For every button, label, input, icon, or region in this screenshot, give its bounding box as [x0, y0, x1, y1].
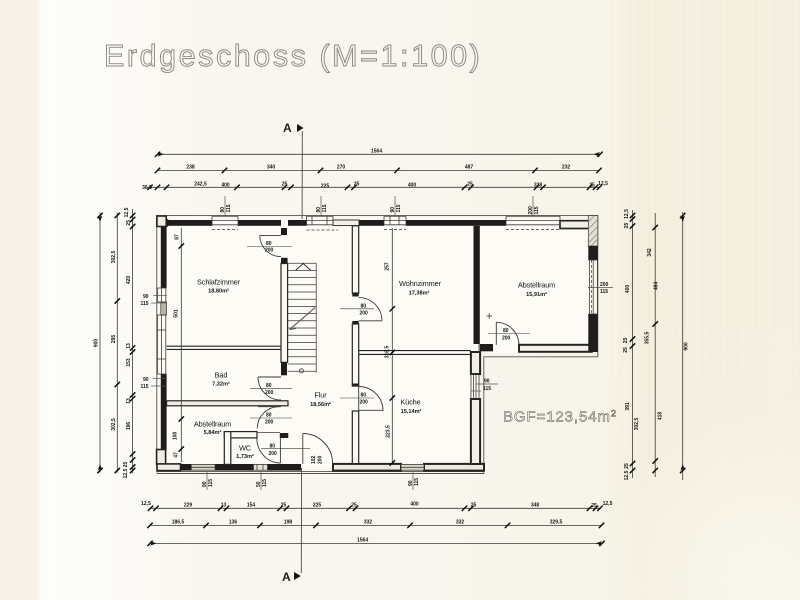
svg-text:332: 332 [456, 519, 465, 525]
svg-text:238: 238 [186, 164, 195, 170]
svg-text:25: 25 [591, 503, 597, 509]
svg-text:25: 25 [471, 502, 477, 508]
svg-text:200: 200 [265, 420, 274, 426]
svg-text:115: 115 [208, 479, 214, 487]
svg-text:47: 47 [174, 452, 180, 458]
svg-text:BGF=123,54m2: BGF=123,54m2 [503, 409, 617, 426]
svg-text:13: 13 [221, 502, 227, 508]
svg-text:196: 196 [126, 422, 132, 431]
svg-text:18,80m²: 18,80m² [208, 288, 229, 295]
svg-text:186,5: 186,5 [172, 519, 185, 525]
svg-text:200: 200 [502, 336, 511, 342]
svg-text:A: A [282, 570, 291, 584]
svg-text:90: 90 [484, 379, 490, 385]
svg-text:355,5: 355,5 [645, 332, 651, 345]
svg-text:12,5: 12,5 [141, 501, 151, 507]
svg-text:12,5: 12,5 [124, 207, 130, 217]
svg-text:900: 900 [94, 339, 100, 348]
svg-text:115: 115 [534, 206, 540, 214]
svg-text:115: 115 [414, 478, 420, 486]
svg-text:Abstellraum: Abstellraum [518, 281, 555, 290]
svg-text:136: 136 [229, 519, 238, 525]
svg-text:25: 25 [623, 338, 629, 344]
svg-text:418: 418 [658, 412, 664, 421]
svg-text:90: 90 [143, 377, 149, 383]
svg-text:13: 13 [126, 398, 132, 404]
svg-text:102: 102 [311, 455, 317, 464]
svg-text:115: 115 [141, 301, 149, 307]
svg-text:200: 200 [265, 248, 274, 254]
svg-text:Flur: Flur [314, 391, 327, 400]
svg-text:25: 25 [351, 502, 357, 508]
svg-text:7,32m²: 7,32m² [212, 381, 230, 388]
svg-text:115: 115 [396, 204, 402, 212]
svg-text:295: 295 [111, 335, 117, 344]
svg-text:25: 25 [354, 182, 360, 188]
svg-text:Erdgeschoss (M=1:100): Erdgeschoss (M=1:100) [104, 39, 482, 73]
svg-text:WC: WC [239, 444, 252, 453]
svg-text:25: 25 [624, 223, 630, 229]
svg-text:25: 25 [589, 182, 595, 188]
svg-text:115: 115 [600, 289, 608, 295]
svg-text:348: 348 [531, 502, 540, 508]
svg-text:25: 25 [126, 220, 132, 226]
svg-text:242,5: 242,5 [194, 182, 207, 188]
svg-text:115: 115 [226, 204, 232, 212]
svg-text:1,73m²: 1,73m² [236, 453, 254, 460]
svg-text:25: 25 [467, 182, 473, 188]
svg-text:200: 200 [600, 282, 609, 288]
svg-text:316,5: 316,5 [385, 346, 391, 359]
svg-text:200: 200 [269, 451, 278, 457]
svg-text:80: 80 [270, 444, 276, 450]
svg-text:1564: 1564 [357, 537, 368, 543]
svg-text:80: 80 [361, 304, 367, 310]
svg-text:1564: 1564 [371, 148, 382, 154]
svg-text:108: 108 [173, 432, 179, 441]
svg-text:80: 80 [266, 241, 272, 247]
svg-text:12,5: 12,5 [598, 181, 608, 187]
svg-text:900: 900 [684, 342, 690, 351]
svg-text:487: 487 [465, 164, 474, 170]
svg-text:154: 154 [247, 502, 256, 508]
svg-text:15,14m²: 15,14m² [401, 408, 422, 415]
svg-text:229: 229 [184, 502, 193, 508]
svg-text:12,5: 12,5 [123, 468, 129, 478]
svg-text:15,91m²: 15,91m² [526, 291, 547, 298]
svg-text:36,5: 36,5 [142, 185, 152, 191]
svg-text:420: 420 [126, 276, 132, 285]
svg-text:501: 501 [174, 309, 180, 318]
svg-text:17,38m²: 17,38m² [409, 290, 430, 297]
svg-text:340: 340 [267, 164, 276, 170]
svg-text:5,84m²: 5,84m² [204, 429, 222, 436]
svg-text:Schlafzimmer: Schlafzimmer [197, 278, 241, 287]
svg-text:232: 232 [562, 164, 571, 170]
svg-text:484: 484 [654, 282, 660, 291]
svg-text:223,5: 223,5 [385, 425, 391, 438]
svg-text:200: 200 [360, 400, 369, 406]
svg-text:13: 13 [126, 343, 132, 349]
svg-text:80: 80 [266, 383, 272, 389]
svg-text:12,5: 12,5 [624, 470, 630, 480]
svg-text:25: 25 [281, 502, 287, 508]
svg-text:332: 332 [364, 519, 373, 525]
svg-text:400: 400 [625, 285, 631, 294]
svg-text:25: 25 [623, 347, 629, 353]
svg-text:302,5: 302,5 [634, 418, 640, 431]
svg-text:12,5: 12,5 [603, 501, 613, 507]
svg-text:342: 342 [647, 248, 653, 257]
svg-text:25: 25 [123, 462, 129, 468]
svg-text:257: 257 [385, 262, 391, 271]
svg-text:400: 400 [408, 183, 417, 189]
svg-text:90: 90 [143, 294, 149, 300]
svg-text:153: 153 [126, 358, 132, 367]
svg-text:Wohnzimmer: Wohnzimmer [399, 279, 442, 288]
svg-text:80: 80 [503, 328, 509, 334]
svg-text:80: 80 [266, 413, 272, 419]
svg-text:25: 25 [282, 182, 288, 188]
svg-text:115: 115 [141, 384, 149, 390]
svg-text:338: 338 [534, 183, 543, 189]
svg-text:302,5: 302,5 [111, 418, 117, 431]
svg-text:225: 225 [313, 502, 322, 508]
svg-text:391: 391 [625, 402, 631, 411]
svg-text:270: 270 [337, 164, 346, 170]
svg-text:329,5: 329,5 [550, 519, 563, 525]
svg-text:A: A [283, 121, 292, 135]
svg-text:25: 25 [624, 463, 630, 469]
svg-text:Küche: Küche [400, 398, 420, 407]
svg-text:115: 115 [483, 386, 491, 392]
svg-text:115: 115 [262, 479, 268, 487]
svg-text:87: 87 [175, 234, 181, 240]
svg-text:198: 198 [284, 519, 293, 525]
svg-text:200: 200 [265, 390, 274, 396]
svg-text:200: 200 [318, 455, 324, 464]
svg-text:115: 115 [322, 204, 328, 212]
svg-text:Bad: Bad [215, 371, 228, 380]
svg-text:Abstellraum: Abstellraum [194, 420, 231, 429]
svg-text:18,56m²: 18,56m² [310, 401, 331, 408]
svg-text:225: 225 [321, 184, 330, 190]
svg-text:80: 80 [361, 393, 367, 399]
svg-text:200: 200 [360, 311, 369, 317]
svg-text:400: 400 [221, 183, 230, 189]
svg-text:400: 400 [410, 502, 419, 508]
svg-text:302,5: 302,5 [111, 251, 117, 264]
svg-text:12,5: 12,5 [624, 209, 630, 219]
